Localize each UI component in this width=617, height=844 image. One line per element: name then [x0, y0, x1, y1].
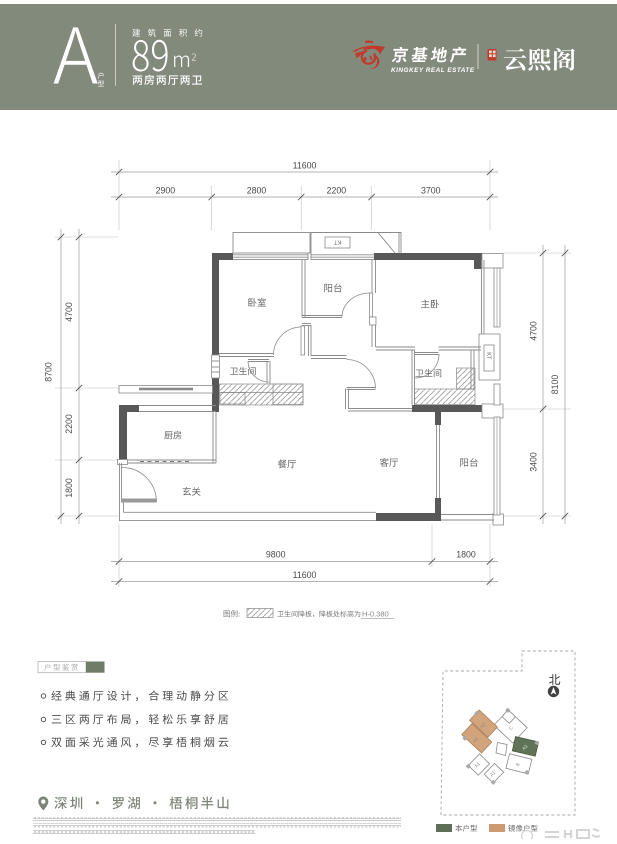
svg-text:2800: 2800 — [247, 186, 267, 196]
svg-text:8100: 8100 — [550, 375, 560, 395]
svg-text:3700: 3700 — [421, 186, 441, 196]
svg-text:11600: 11600 — [293, 161, 317, 171]
svg-text:9800: 9800 — [266, 550, 286, 560]
svg-text:11600: 11600 — [293, 570, 317, 580]
svg-text:1800: 1800 — [64, 478, 74, 498]
svg-text:2200: 2200 — [64, 414, 74, 434]
svg-text:3400: 3400 — [529, 452, 539, 472]
svg-text:8700: 8700 — [44, 362, 54, 382]
svg-text:4700: 4700 — [64, 302, 74, 322]
svg-text:H-0.380: H-0.380 — [362, 610, 389, 619]
svg-text:4700: 4700 — [529, 321, 539, 341]
svg-text:KINGKEY REAL ESTATE: KINGKEY REAL ESTATE — [391, 67, 475, 74]
svg-text:1800: 1800 — [456, 550, 476, 560]
svg-text:2900: 2900 — [156, 186, 176, 196]
svg-text:2200: 2200 — [327, 186, 347, 196]
